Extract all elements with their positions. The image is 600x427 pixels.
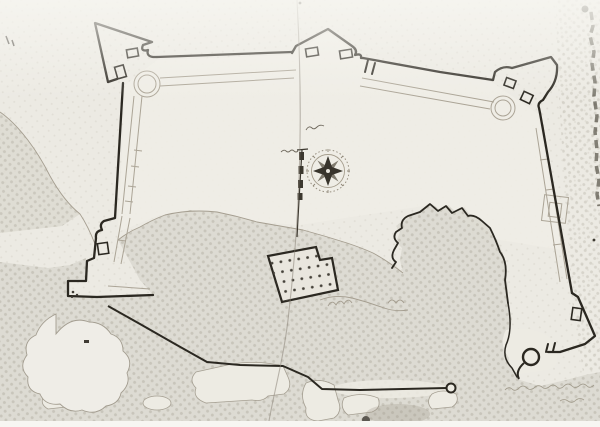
rock-mark bbox=[84, 340, 89, 343]
pond-f bbox=[143, 396, 171, 410]
pond-b bbox=[303, 380, 340, 421]
fortress-plan-svg bbox=[0, 0, 600, 427]
pond-d bbox=[429, 391, 458, 409]
se-round-tower bbox=[523, 349, 539, 365]
top-light-fade bbox=[0, 0, 600, 220]
photo-bottom-margin bbox=[0, 421, 600, 427]
scanned-map-photo bbox=[0, 0, 600, 427]
road-end-well bbox=[447, 384, 456, 393]
